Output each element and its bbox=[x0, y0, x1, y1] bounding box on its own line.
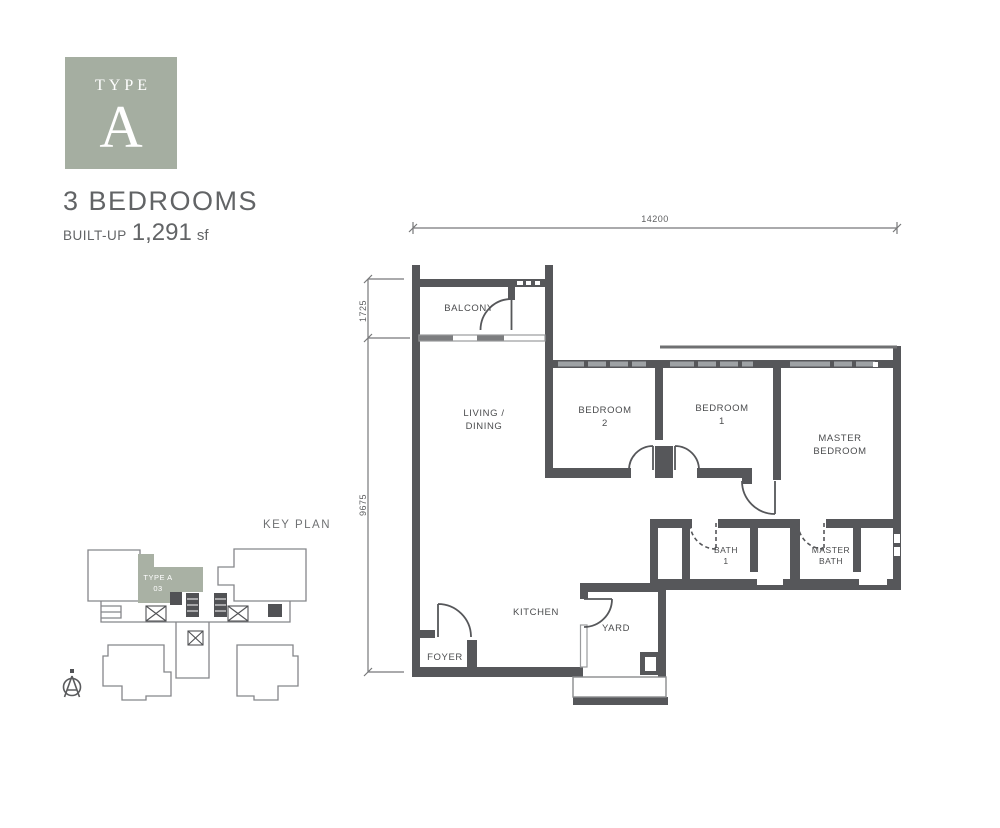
floor-plan-drawing: 14200 1725 9675 bbox=[0, 0, 1000, 828]
key-plan-center-strip bbox=[176, 622, 209, 678]
bath1-door bbox=[690, 523, 716, 549]
room-label-bedroom2-2: 2 bbox=[602, 418, 608, 429]
room-label-bath1-2: 1 bbox=[723, 556, 728, 566]
dimension-balcony-depth: 1725 bbox=[358, 300, 368, 322]
room-label-yard: YARD bbox=[602, 623, 630, 634]
room-label-bedroom2-1: BEDROOM bbox=[578, 405, 631, 416]
foyer-door bbox=[438, 604, 471, 637]
walls bbox=[412, 265, 901, 705]
key-plan-block-topright bbox=[218, 549, 306, 601]
key-plan-cell bbox=[101, 606, 121, 618]
room-label-masterbath-1: MASTER bbox=[812, 545, 850, 555]
room-label-bedroom1-1: BEDROOM bbox=[695, 403, 748, 414]
north-arrow-icon bbox=[64, 669, 81, 697]
key-plan-block-bottomleft bbox=[103, 645, 171, 700]
room-label-bedroom1-2: 1 bbox=[719, 416, 725, 427]
key-plan: KEY PLAN TYPE A 03 bbox=[64, 519, 332, 700]
room-label-balcony: BALCONY bbox=[444, 303, 494, 314]
bedroom1-door bbox=[675, 446, 699, 470]
bedroom2-door bbox=[629, 446, 653, 470]
room-label-master-1: MASTER bbox=[818, 433, 861, 444]
key-plan-unit-type: TYPE A bbox=[143, 573, 172, 582]
room-label-master-2: BEDROOM bbox=[813, 446, 866, 457]
room-label-living-2: DINING bbox=[466, 421, 503, 432]
key-plan-block-bottomright bbox=[237, 645, 298, 700]
room-label-bath1-1: BATH bbox=[714, 545, 738, 555]
key-plan-block-topleft bbox=[88, 550, 140, 601]
room-labels: BALCONY LIVING / DINING BEDROOM 2 BEDROO… bbox=[427, 303, 867, 663]
key-plan-unit-number: 03 bbox=[153, 584, 162, 593]
room-label-kitchen: KITCHEN bbox=[513, 607, 559, 618]
room-label-foyer: FOYER bbox=[427, 652, 463, 663]
dimension-body-depth: 9675 bbox=[358, 494, 368, 516]
key-plan-title: KEY PLAN bbox=[263, 519, 331, 531]
room-label-living-1: LIVING / bbox=[463, 408, 504, 419]
master-bedroom-door bbox=[742, 481, 775, 514]
dimension-width: 14200 bbox=[641, 214, 669, 224]
room-label-masterbath-2: BATH bbox=[819, 556, 843, 566]
floor-plan-page: TYPE A 3 BEDROOMS BUILT-UP 1,291 sf 1420… bbox=[0, 0, 1000, 828]
